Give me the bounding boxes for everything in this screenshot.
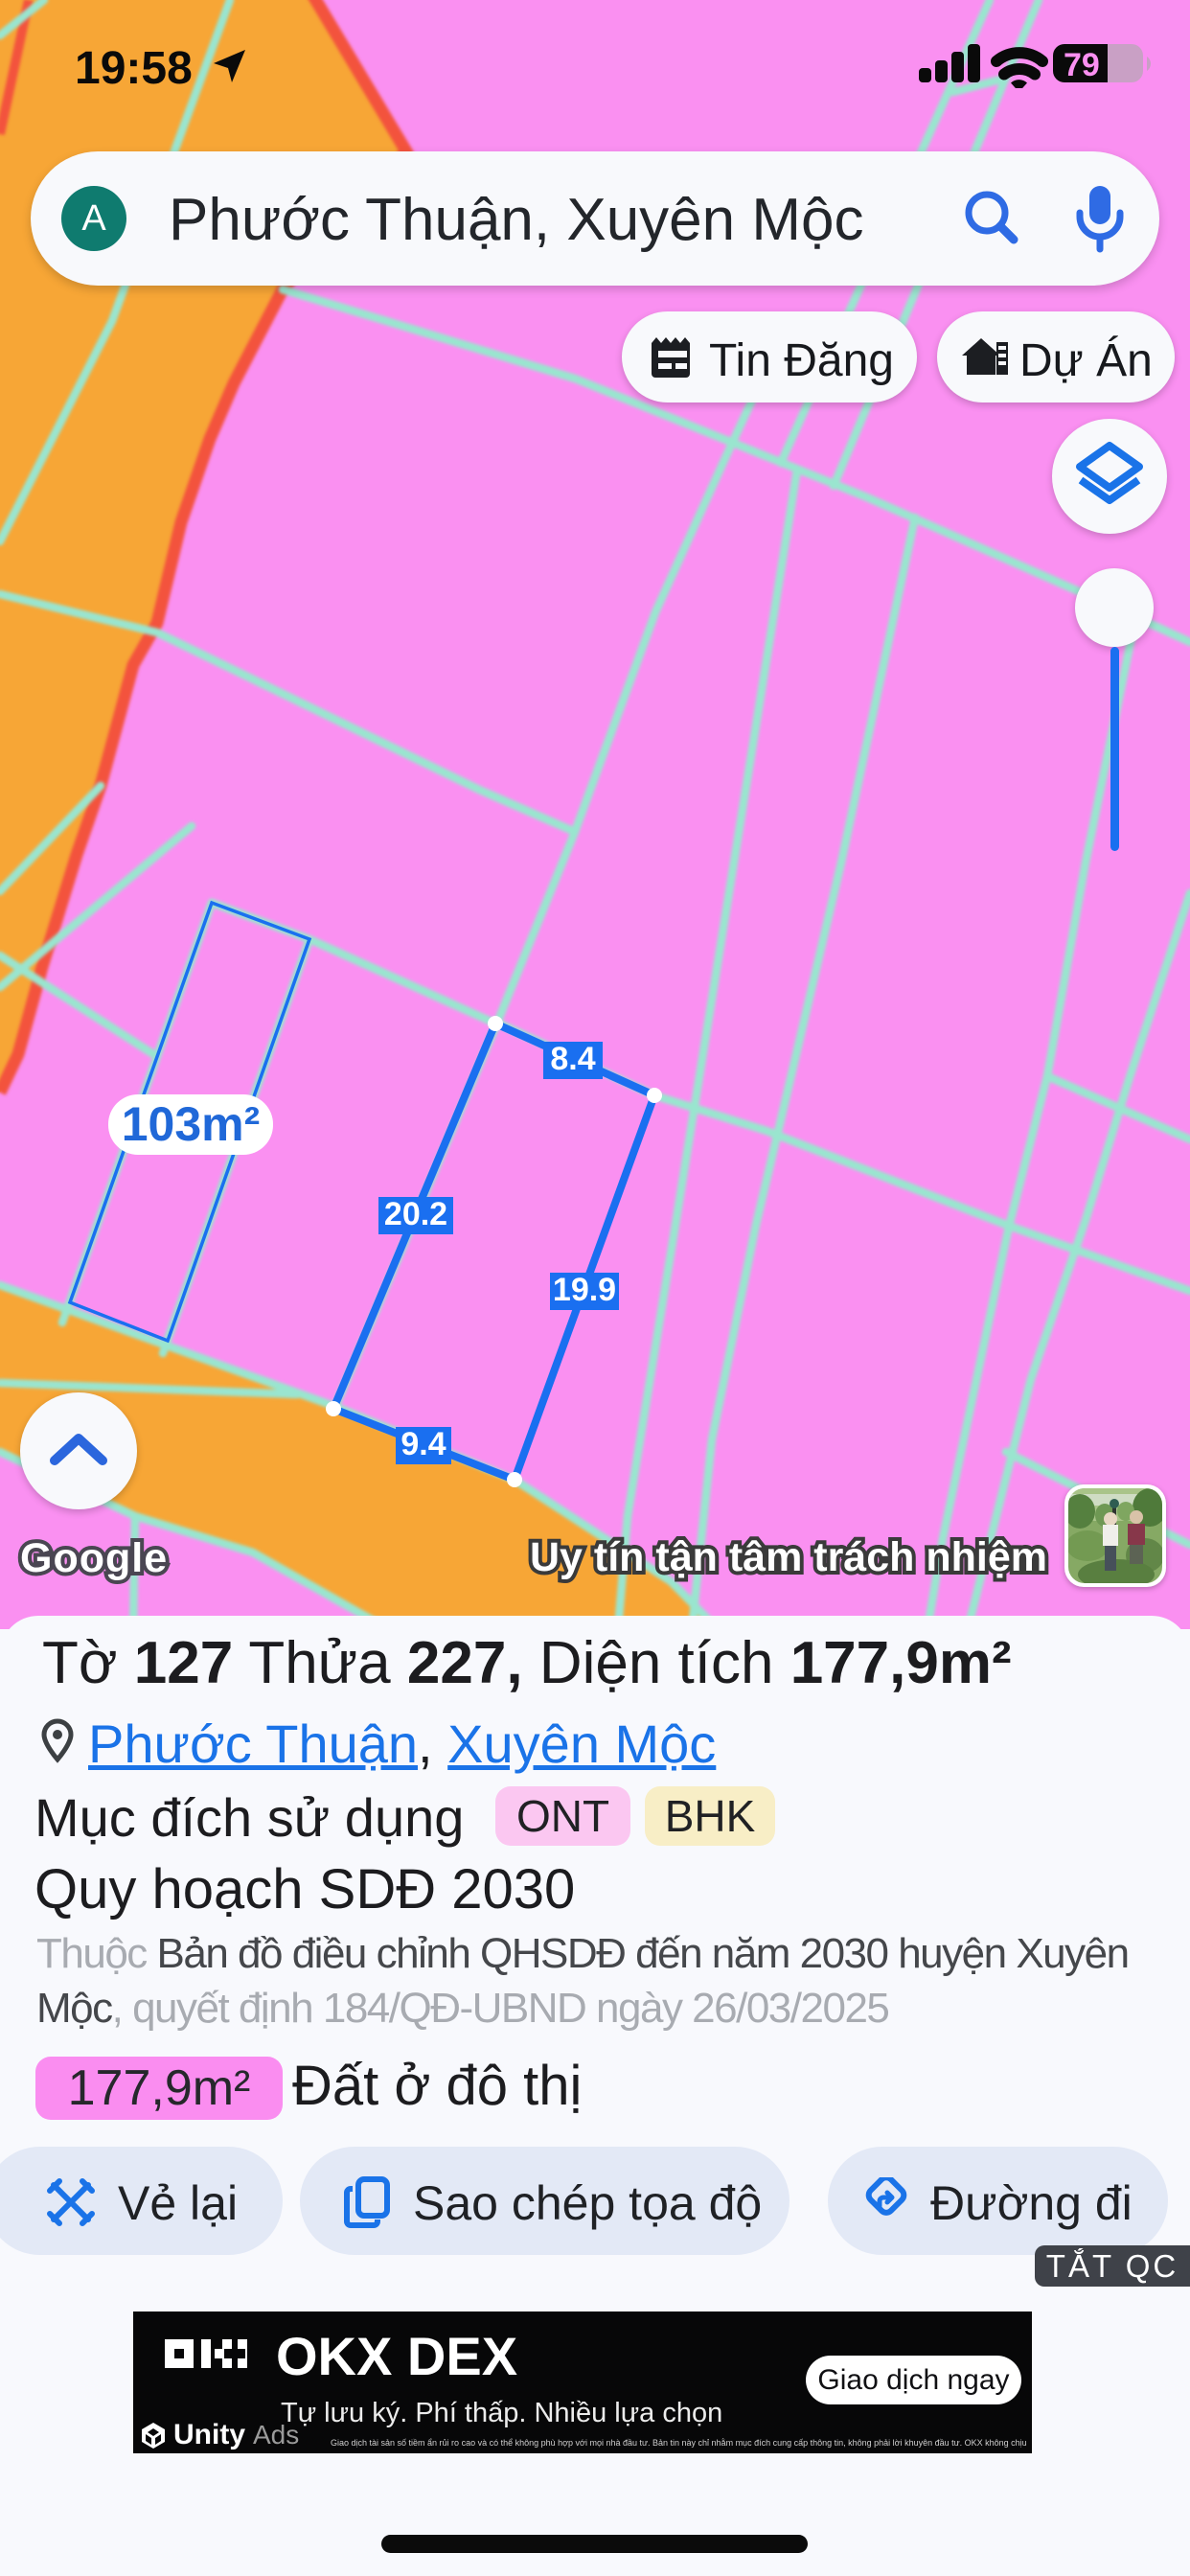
svg-text:9.4: 9.4 (400, 1426, 446, 1462)
svg-text:20.2: 20.2 (384, 1196, 447, 1232)
svg-text:19.9: 19.9 (553, 1272, 616, 1308)
svg-text:8.4: 8.4 (550, 1041, 595, 1077)
svg-text:103m²: 103m² (122, 1097, 261, 1151)
svg-text:79: 79 (1064, 47, 1100, 83)
